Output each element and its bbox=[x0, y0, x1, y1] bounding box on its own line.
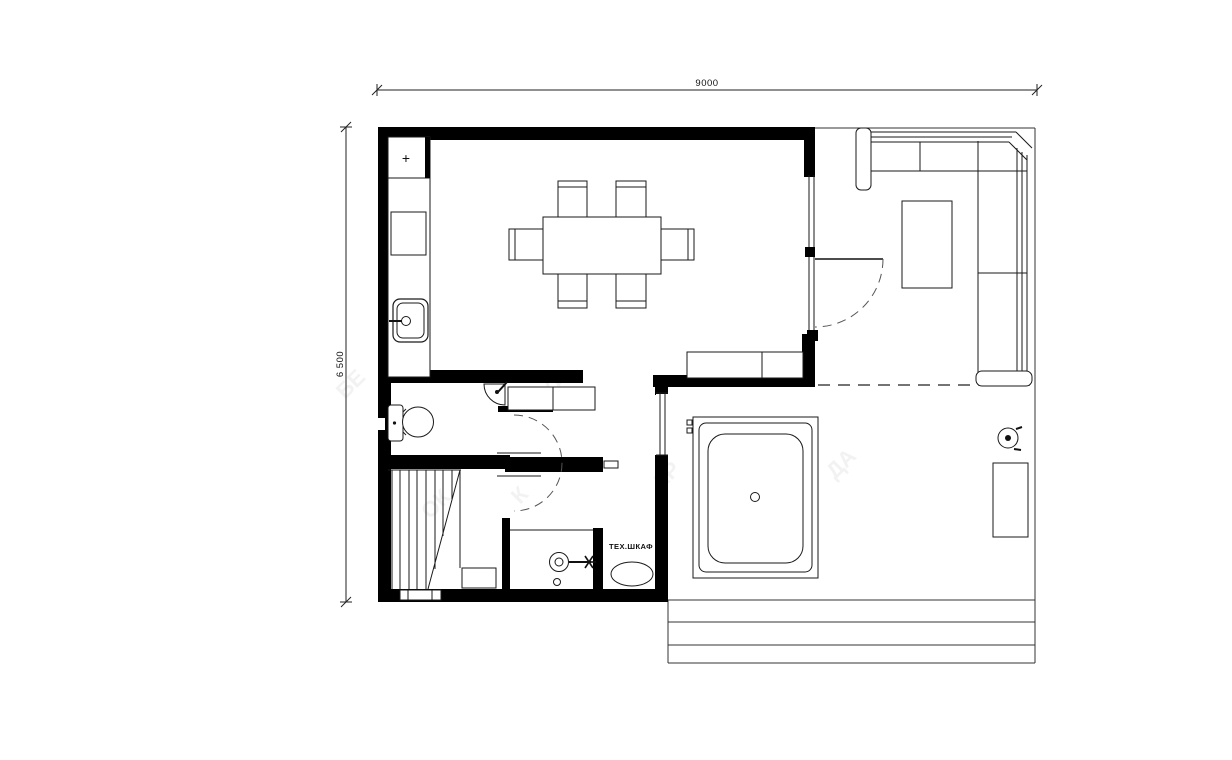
floor-plan-page: БЕ ЖА К АР ДА ОК 9000 6 500 bbox=[0, 0, 1232, 760]
wall-east-pier-top bbox=[655, 375, 668, 395]
shower-room bbox=[510, 530, 596, 586]
hob-marker: + bbox=[402, 150, 410, 166]
dining-chair bbox=[616, 274, 646, 308]
door-leaf-entry bbox=[604, 461, 618, 468]
watermark-text: ОК bbox=[416, 484, 456, 524]
dimension-left: 6 500 bbox=[335, 122, 352, 607]
dimension-width-label: 9000 bbox=[695, 78, 718, 89]
dining-chair bbox=[558, 181, 587, 217]
dining-chair bbox=[509, 229, 543, 260]
wall-sauna-north bbox=[378, 455, 510, 469]
dining-table bbox=[543, 217, 661, 274]
coffee-table bbox=[902, 201, 952, 288]
door-swing-arc-living bbox=[815, 259, 883, 327]
wall-east-lower bbox=[655, 455, 668, 602]
toilet bbox=[388, 405, 434, 441]
water-heater bbox=[611, 562, 653, 586]
kitchen-sink bbox=[389, 299, 428, 342]
floor-plan-drawing: БЕ ЖА К АР ДА ОК 9000 6 500 bbox=[0, 0, 1232, 760]
wall-shower-west bbox=[502, 518, 510, 595]
floor-drain bbox=[550, 553, 569, 572]
dining-bench bbox=[687, 352, 803, 378]
kitchen-appliance bbox=[391, 212, 426, 255]
bathroom-cabinet bbox=[508, 387, 595, 410]
wall-dining-east-lower bbox=[802, 334, 815, 387]
outdoor-column bbox=[993, 463, 1028, 537]
wall-tech-west bbox=[593, 528, 603, 592]
mixer-valve bbox=[569, 556, 596, 568]
dining-chair bbox=[616, 181, 646, 217]
kitchen-hob-edge bbox=[425, 137, 430, 178]
deck-steps bbox=[668, 600, 1035, 663]
dimension-top: 9000 bbox=[372, 78, 1042, 96]
living-area bbox=[856, 128, 1032, 386]
sofa-arm-bottom bbox=[976, 371, 1032, 386]
kitchen: + bbox=[388, 137, 430, 377]
wall-top bbox=[378, 127, 815, 140]
dining-area bbox=[509, 181, 803, 378]
windows bbox=[656, 175, 818, 455]
dining-chair bbox=[558, 274, 587, 308]
wall-pier-mid bbox=[805, 247, 815, 257]
wall-dining-east-upper bbox=[804, 127, 815, 177]
wall-left-niche bbox=[378, 418, 385, 430]
deck-fixtures bbox=[993, 427, 1028, 537]
window-corridor-east bbox=[656, 393, 668, 455]
corner-sink bbox=[484, 382, 507, 405]
watermark-text: К bbox=[506, 481, 534, 509]
small-drain bbox=[554, 579, 561, 586]
sauna-ledge bbox=[400, 590, 441, 600]
hot-tub bbox=[687, 417, 818, 578]
wall-corridor-south bbox=[505, 457, 603, 472]
wall-pier-low bbox=[807, 330, 818, 341]
watermark-text: ДА bbox=[821, 443, 861, 483]
hot-tub-jet bbox=[687, 428, 692, 433]
door-living bbox=[815, 259, 883, 327]
outdoor-shower-drain bbox=[998, 427, 1022, 450]
bathroom bbox=[388, 382, 595, 441]
sauna-stool bbox=[462, 568, 496, 588]
tech-cabinet-room: ТЕХ.ШКАФ bbox=[609, 542, 653, 586]
dimension-height-label: 6 500 bbox=[335, 351, 346, 377]
sofa-arm-left bbox=[856, 128, 871, 190]
hot-tub-jet bbox=[687, 420, 692, 425]
tech-cabinet-label: ТЕХ.ШКАФ bbox=[609, 542, 653, 551]
dining-chair bbox=[661, 229, 694, 260]
